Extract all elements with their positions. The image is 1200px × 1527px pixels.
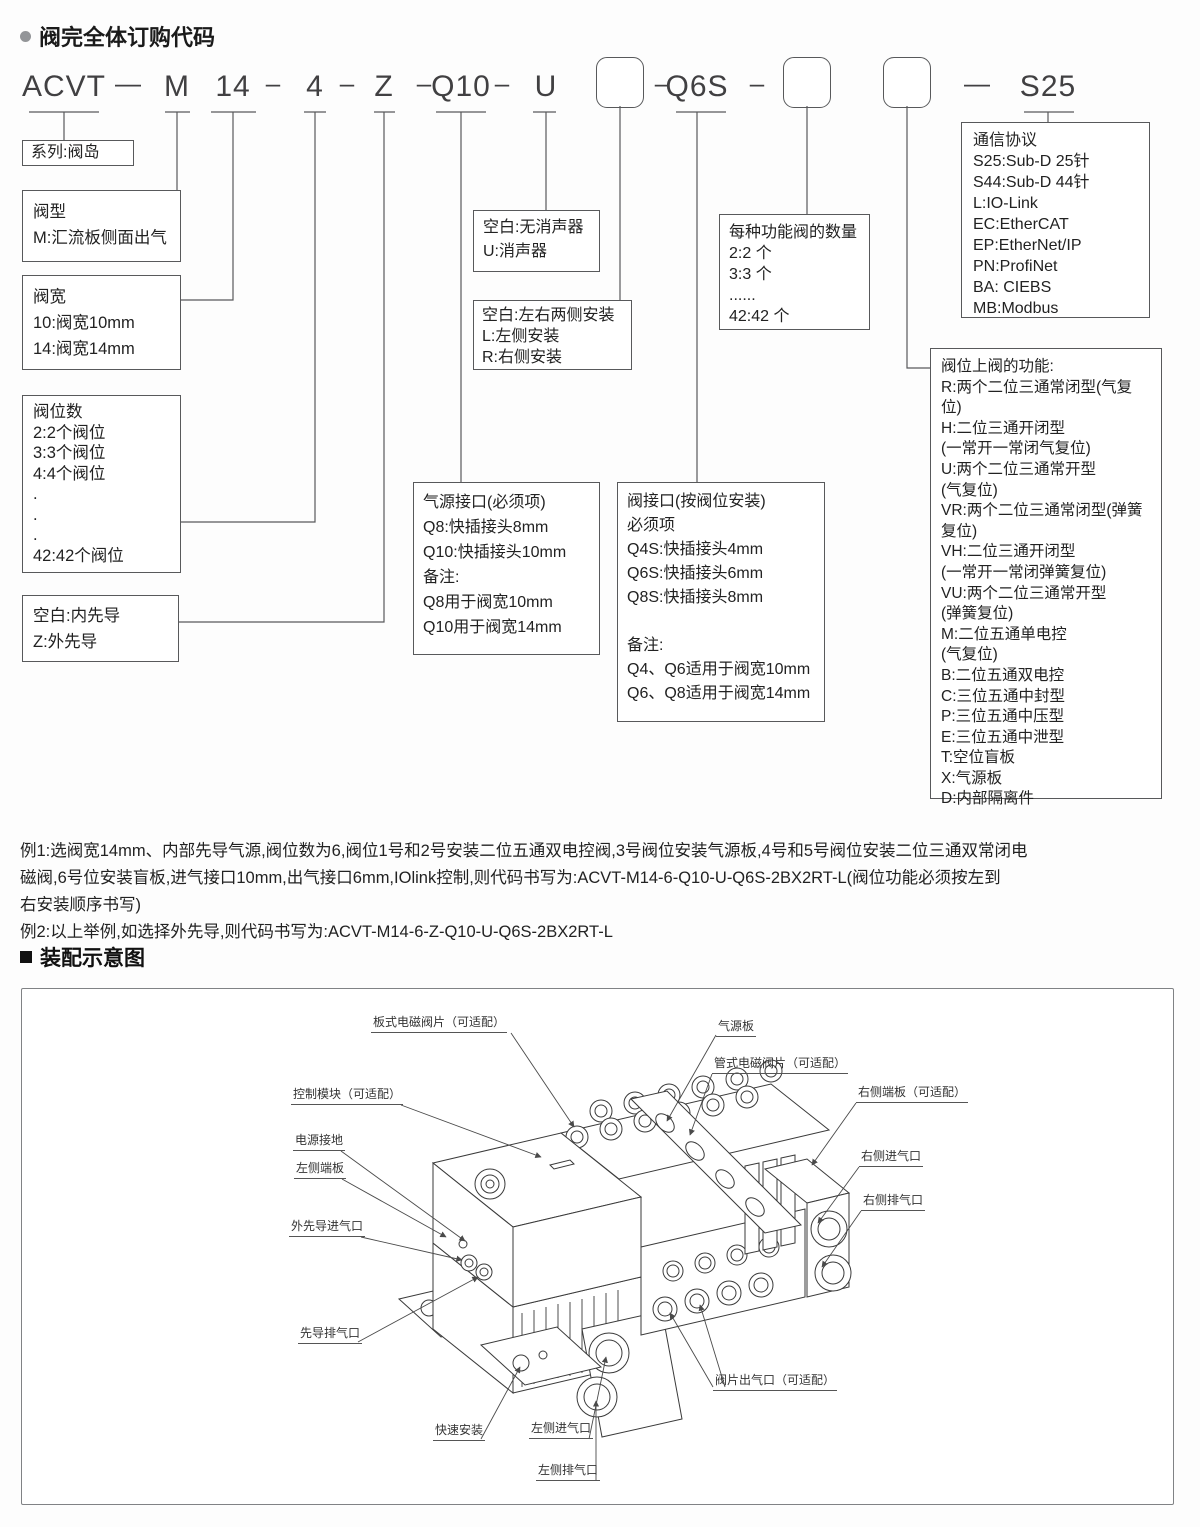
diagram-label-left-inlet: 左侧进气口 xyxy=(529,1421,593,1439)
spec-box-valve-type: 阀型 M:汇流板侧面出气 xyxy=(22,190,181,262)
diagram-label-right-inlet: 右侧进气口 xyxy=(859,1149,923,1167)
bottom-corner-block xyxy=(582,1311,682,1437)
spec-box-pilot: 空白:内先导 Z:外先导 xyxy=(22,595,179,662)
spec-box-valve-width: 阀宽 10:阀宽10mm 14:阀宽14mm xyxy=(22,275,181,370)
diagram-label-power-ground: 电源接地 xyxy=(293,1133,345,1151)
square-bullet-icon xyxy=(20,951,32,963)
examples-text: 例1:选阀宽14mm、内部先导气源,阀位数为6,阀位1号和2号安装二位五通双电控… xyxy=(20,838,1188,946)
page: { "header": { "title": "阀完全体订购代码" }, "co… xyxy=(0,0,1200,1527)
diagram-label-quick-mount: 快速安装 xyxy=(433,1423,485,1441)
diagram-label-right-endplate: 右侧端板（可适配） xyxy=(856,1085,968,1103)
assembly-section-title-row: 装配示意图 xyxy=(20,942,145,972)
diagram-label-tube-valve: 管式电磁阀片（可适配） xyxy=(712,1056,848,1074)
spec-box-quantity: 每种功能阀的数量 2:2 个 3:3 个 ...... 42:42 个 xyxy=(719,214,870,330)
valve-manifold-drawing xyxy=(22,989,1175,1506)
diagram-label-plate-valve: 板式电磁阀片（可适配） xyxy=(371,1015,507,1033)
diagram-label-pilot-exhaust: 先导排气口 xyxy=(298,1326,362,1344)
diagram-label-control-module: 控制模块（可适配） xyxy=(291,1087,403,1105)
spec-box-muffler: 空白:无消声器 U:消声器 xyxy=(473,210,600,272)
diagram-label-supply-plate: 气源板 xyxy=(716,1019,756,1037)
diagram-label-right-exhaust: 右侧排气口 xyxy=(861,1193,925,1211)
diagram-label-valve-outlet: 阀片出气口（可适配） xyxy=(713,1373,837,1391)
diagram-label-left-endplate: 左侧端板 xyxy=(294,1161,346,1179)
diagram-label-ext-pilot-inlet: 外先导进气口 xyxy=(289,1219,365,1237)
spec-box-valve-port: 阀接口(按阀位安装) 必须项 Q4S:快插接头4mm Q6S:快插接头6mm Q… xyxy=(617,482,825,722)
spec-box-air-port: 气源接口(必须项) Q8:快插接头8mm Q10:快插接头10mm 备注: Q8… xyxy=(413,482,600,655)
spec-box-series: 系列:阀岛 xyxy=(22,140,134,166)
spec-box-mounting: 空白:左右两侧安装 L:左侧安装 R:右侧安装 xyxy=(473,300,632,370)
ground-screw xyxy=(459,1240,467,1248)
assembly-section-title: 装配示意图 xyxy=(40,942,145,972)
spec-box-positions: 阀位数 2:2个阀位 3:3个阀位 4:4个阀位 . . . 42:42个阀位 xyxy=(22,395,181,573)
spec-box-functions: 阀位上阀的功能: R:两个二位三通常闭型(气复位) H:二位三通开闭型 (一常开… xyxy=(930,348,1162,799)
assembly-diagram: 板式电磁阀片（可适配） 气源板 管式电磁阀片（可适配） 右侧端板（可适配） 控制… xyxy=(21,988,1174,1505)
diagram-label-left-exhaust: 左侧排气口 xyxy=(536,1463,600,1481)
spec-box-protocol: 通信协议 S25:Sub-D 25针 S44:Sub-D 44针 L:IO-Li… xyxy=(961,122,1150,318)
